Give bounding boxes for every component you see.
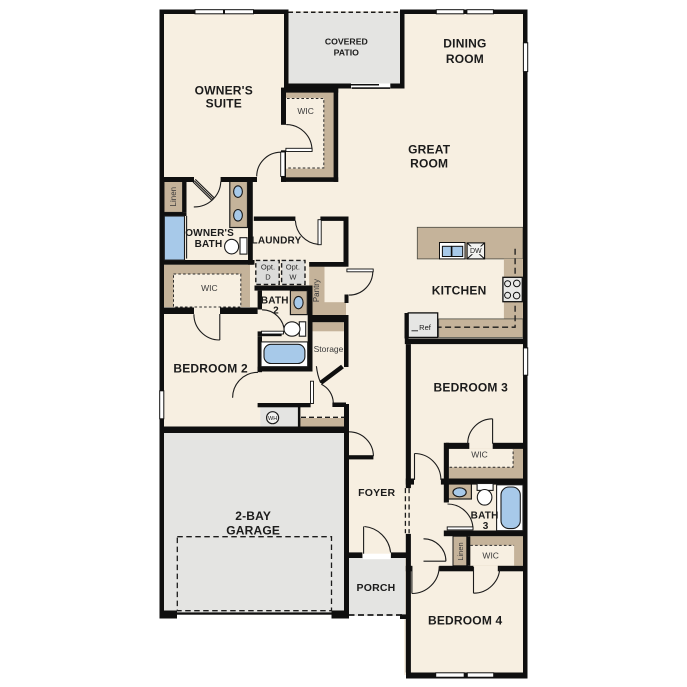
svg-text:KITCHEN: KITCHEN <box>432 284 487 298</box>
svg-text:GREAT: GREAT <box>408 142 451 156</box>
svg-text:WIC: WIC <box>297 106 314 116</box>
svg-text:WIC: WIC <box>201 283 218 293</box>
svg-text:COVERED: COVERED <box>325 37 368 47</box>
svg-text:PATIO: PATIO <box>334 48 359 58</box>
svg-text:ROOM: ROOM <box>446 52 484 66</box>
svg-text:WH: WH <box>268 416 277 422</box>
svg-text:DW: DW <box>470 248 482 255</box>
svg-text:Opt.: Opt. <box>261 263 275 272</box>
svg-text:LAUNDRY: LAUNDRY <box>252 236 302 247</box>
svg-text:BEDROOM 4: BEDROOM 4 <box>428 614 503 628</box>
svg-text:Linen: Linen <box>169 187 178 207</box>
svg-text:DINING: DINING <box>443 36 486 50</box>
svg-text:FOYER: FOYER <box>358 487 395 499</box>
svg-text:Opt.: Opt. <box>286 263 300 272</box>
svg-text:2-BAY: 2-BAY <box>235 509 271 523</box>
svg-text:Storage: Storage <box>314 344 344 354</box>
svg-text:Ref: Ref <box>419 323 432 332</box>
svg-text:GARAGE: GARAGE <box>226 524 280 538</box>
svg-text:BATH: BATH <box>195 239 223 250</box>
svg-text:3: 3 <box>483 521 489 532</box>
svg-text:D: D <box>265 273 271 282</box>
svg-text:W: W <box>289 273 297 282</box>
svg-text:PORCH: PORCH <box>357 582 396 594</box>
svg-text:ROOM: ROOM <box>410 157 448 171</box>
svg-text:BEDROOM 3: BEDROOM 3 <box>434 381 509 395</box>
svg-text:WIC: WIC <box>482 551 499 561</box>
svg-text:SUITE: SUITE <box>206 97 242 111</box>
svg-text:Pantry: Pantry <box>312 279 321 302</box>
svg-text:OWNER'S: OWNER'S <box>185 228 234 239</box>
svg-text:Linen: Linen <box>456 542 465 560</box>
svg-text:BEDROOM 2: BEDROOM 2 <box>173 361 248 375</box>
svg-text:2: 2 <box>273 305 279 316</box>
svg-text:OWNER'S: OWNER'S <box>195 83 253 97</box>
svg-text:WIC: WIC <box>471 450 488 460</box>
